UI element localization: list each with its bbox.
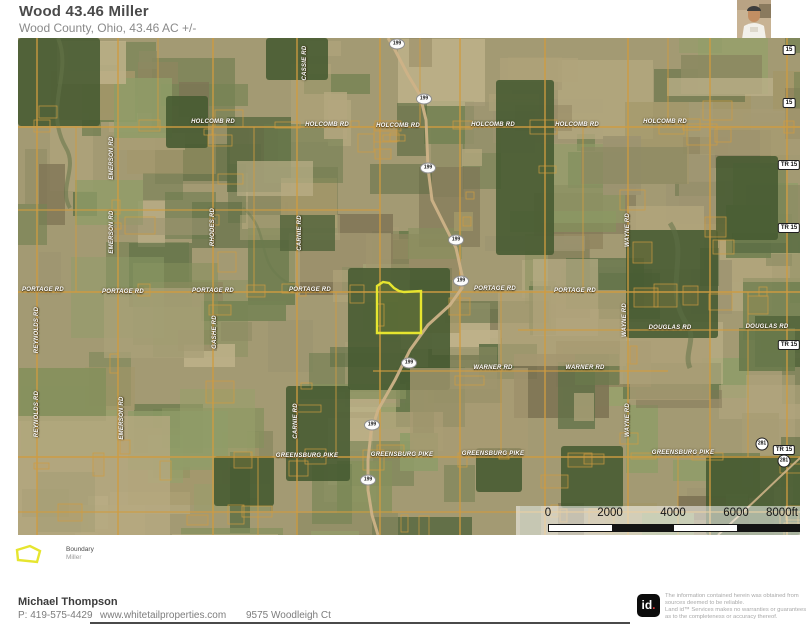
- agent-address: 9575 Woodleigh Ct: [246, 610, 331, 621]
- agent-photo: [737, 0, 771, 39]
- road-label: PORTAGE RD: [289, 287, 331, 293]
- scale-bar-bar: [548, 524, 800, 532]
- road-label: HOLCOMB RD: [555, 122, 599, 128]
- disclaimer-line: The information contained herein was obt…: [665, 593, 807, 600]
- road-label: GREENSBURG PIKE: [652, 450, 714, 456]
- page-title: Wood 43.46 Miller: [19, 3, 149, 20]
- road-label: CARNIE RD: [297, 215, 303, 251]
- road-label: HOLCOMB RD: [471, 122, 515, 128]
- legend: Boundary Miller: [14, 544, 94, 566]
- route-199-shield: 199: [453, 276, 469, 287]
- agent-name: Michael Thompson: [18, 596, 118, 608]
- road-label: HOLCOMB RD: [305, 122, 349, 128]
- agent-website: www.whitetailproperties.com: [100, 610, 226, 621]
- scale-tick-label: 0: [545, 507, 551, 519]
- road-label: PORTAGE RD: [22, 287, 64, 293]
- route-281-badge: 281: [756, 438, 769, 451]
- tr-15-badge: TR 15: [778, 340, 800, 350]
- satellite-map: HOLCOMB RDHOLCOMB RDHOLCOMB RDHOLCOMB RD…: [18, 38, 800, 535]
- route-281-badge: 281: [778, 455, 791, 468]
- tr-15-badge: 15: [783, 45, 796, 55]
- road-label: RHODES RD: [210, 208, 216, 246]
- disclaimer-line: as to the completeness or accuracy there…: [665, 614, 807, 621]
- land-id-logo: id.: [637, 594, 660, 617]
- route-199-shield: 199: [401, 358, 417, 369]
- footer-divider: [90, 622, 630, 624]
- road-label: REYNOLDS RD: [34, 391, 40, 437]
- agent-photo-image: [737, 0, 771, 39]
- road-label: EMERSON RD: [109, 210, 115, 253]
- legend-sublabel: Miller: [66, 554, 94, 562]
- agent-phone: P: 419-575-4429: [18, 610, 93, 621]
- tr-15-badge: 15: [783, 98, 796, 108]
- land-id-logo-dot: .: [652, 598, 655, 612]
- road-label: CASSIE RD: [302, 46, 308, 81]
- scale-tick-label: 8000ft: [766, 507, 798, 519]
- map-graphics: [18, 38, 800, 535]
- route-199-shield: 199: [389, 39, 405, 50]
- disclaimer-line: Land id™ Services makes no warranties or…: [665, 607, 807, 614]
- scale-tick-label: 6000: [723, 507, 749, 519]
- road-label: PORTAGE RD: [474, 286, 516, 292]
- route-199-shield: 199: [416, 94, 432, 105]
- road-label: PORTAGE RD: [102, 289, 144, 295]
- scale-bar: 02000400060008000ft: [516, 506, 800, 535]
- road-label: WARNER RD: [565, 365, 604, 371]
- page-subtitle: Wood County, Ohio, 43.46 AC +/-: [19, 21, 196, 35]
- road-label: HOLCOMB RD: [376, 123, 420, 129]
- road-label: DOUGLAS RD: [746, 324, 789, 330]
- scale-segment: [612, 525, 675, 531]
- scale-segment: [549, 525, 612, 531]
- road-label: WAYNE RD: [625, 213, 631, 247]
- road-label: CARNIE RD: [293, 403, 299, 439]
- scale-segment: [737, 525, 800, 531]
- road-label: REYNOLDS RD: [34, 307, 40, 353]
- road-label: WARNER RD: [473, 365, 512, 371]
- road-label: EMERSON RD: [119, 396, 125, 439]
- road-label: GREENSBURG PIKE: [462, 451, 524, 457]
- tr-15-badge: TR 15: [773, 445, 795, 455]
- scale-segment: [674, 525, 737, 531]
- road-label: GASHE RD: [212, 315, 218, 349]
- road-label: HOLCOMB RD: [191, 119, 235, 125]
- route-199-shield: 199: [364, 420, 380, 431]
- road-label: PORTAGE RD: [554, 288, 596, 294]
- road-label: HOLCOMB RD: [643, 119, 687, 125]
- disclaimer-text: The information contained herein was obt…: [665, 593, 807, 621]
- road-label: GREENSBURG PIKE: [371, 452, 433, 458]
- road-label: EMERSON RD: [109, 136, 115, 179]
- disclaimer-line: sources deemed to be reliable.: [665, 600, 807, 607]
- road-label: PORTAGE RD: [192, 288, 234, 294]
- tr-15-badge: TR 15: [778, 160, 800, 170]
- road-label: WAYNE RD: [622, 303, 628, 337]
- road-label: WAYNE RD: [625, 403, 631, 437]
- legend-text: Boundary Miller: [66, 546, 94, 562]
- boundary-polygon-icon: [14, 544, 44, 566]
- road-label: GREENSBURG PIKE: [276, 453, 338, 459]
- land-id-logo-text: id: [641, 598, 652, 612]
- route-199-shield: 199: [360, 475, 376, 486]
- tr-15-badge: TR 15: [778, 223, 800, 233]
- scale-tick-label: 4000: [660, 507, 686, 519]
- road-label: DOUGLAS RD: [649, 325, 692, 331]
- legend-label: Boundary: [66, 546, 94, 554]
- route-199-shield: 199: [448, 235, 464, 246]
- scale-tick-label: 2000: [597, 507, 623, 519]
- route-199-shield: 199: [420, 163, 436, 174]
